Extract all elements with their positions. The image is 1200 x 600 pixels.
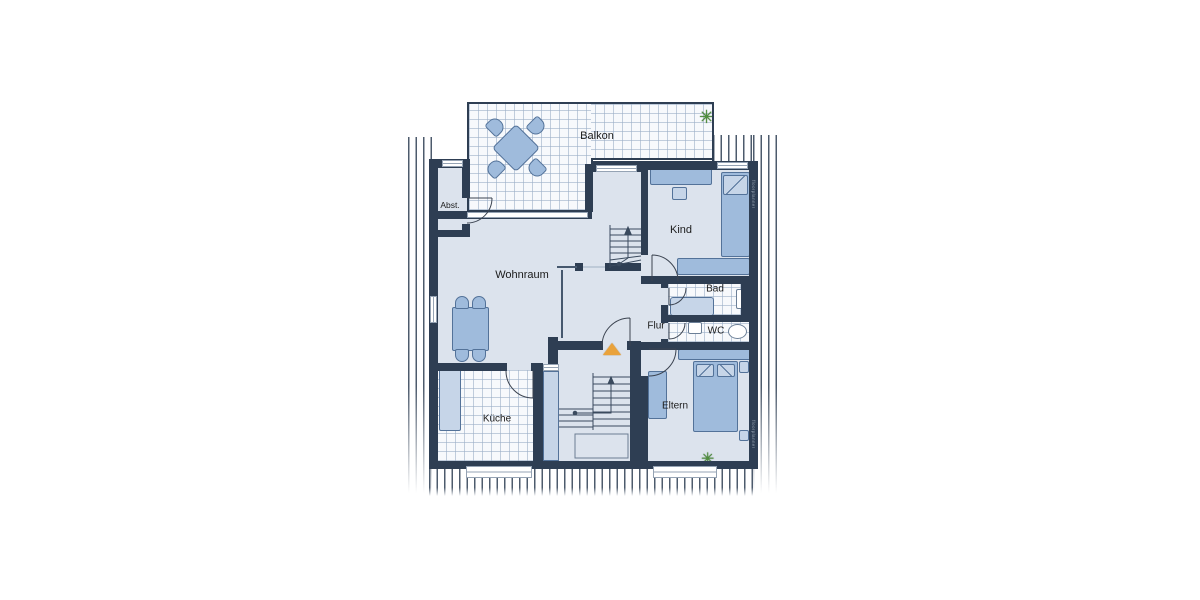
desk-icon [650, 168, 712, 185]
partition-line [561, 270, 563, 338]
dining-table-icon [452, 307, 489, 351]
wall [557, 341, 603, 350]
wardrobe-icon [648, 371, 667, 419]
floor-plan: ✳ ✳ [0, 0, 1200, 600]
dresser-icon [677, 258, 750, 275]
window [430, 296, 437, 323]
nightstand-icon [739, 361, 749, 373]
wall [641, 342, 758, 350]
partition-line [557, 266, 577, 268]
pillow-icon [723, 175, 748, 195]
room-label-eltern: Eltern [662, 401, 688, 412]
wall [429, 230, 470, 237]
room-label-balkon: Balkon [580, 130, 614, 142]
balcony-border [467, 102, 469, 212]
balcony-border [467, 102, 714, 104]
bathtub-icon [670, 297, 714, 316]
wall [641, 161, 648, 255]
kitchen-counter-icon [439, 369, 461, 431]
window [442, 160, 463, 167]
window [467, 212, 588, 218]
balcony-border [591, 158, 593, 212]
balcony-border [591, 158, 713, 160]
pillow-icon [717, 364, 735, 377]
sideboard-icon [678, 349, 752, 360]
room-label-flur: Flur [647, 321, 664, 332]
balcony-border [712, 102, 714, 161]
stair-closet [543, 371, 559, 461]
wall [641, 376, 648, 461]
room-label-kueche: Küche [483, 414, 511, 425]
entrance-arrow-icon [603, 343, 621, 355]
wall [613, 263, 641, 271]
wall [627, 341, 641, 350]
window [596, 165, 637, 172]
pillow-icon [696, 364, 714, 377]
room-label-wc: WC [708, 326, 725, 337]
wall-post [605, 263, 613, 271]
room-label-wohnraum: Wohnraum [495, 269, 549, 281]
room-label-kind: Kind [670, 224, 692, 236]
wall [429, 363, 507, 371]
wall [661, 284, 668, 288]
wall-watermark: floorplanner [751, 420, 756, 460]
window [653, 466, 717, 478]
wall [630, 350, 641, 461]
chair-icon [455, 296, 469, 309]
window [717, 162, 748, 169]
nightstand-icon [739, 430, 749, 441]
chair-icon [472, 296, 486, 309]
sink-icon [688, 322, 702, 334]
window [543, 364, 559, 371]
wall [641, 276, 758, 284]
room-label-bad: Bad [706, 284, 724, 295]
toilet-icon [728, 324, 747, 339]
room-label-abstellraum: Abst. [440, 200, 459, 210]
chair-icon [672, 187, 687, 200]
wall [741, 284, 750, 320]
wall [533, 368, 543, 461]
wall-watermark: floorplanner [751, 180, 756, 220]
wall [641, 342, 648, 350]
window [466, 466, 532, 478]
